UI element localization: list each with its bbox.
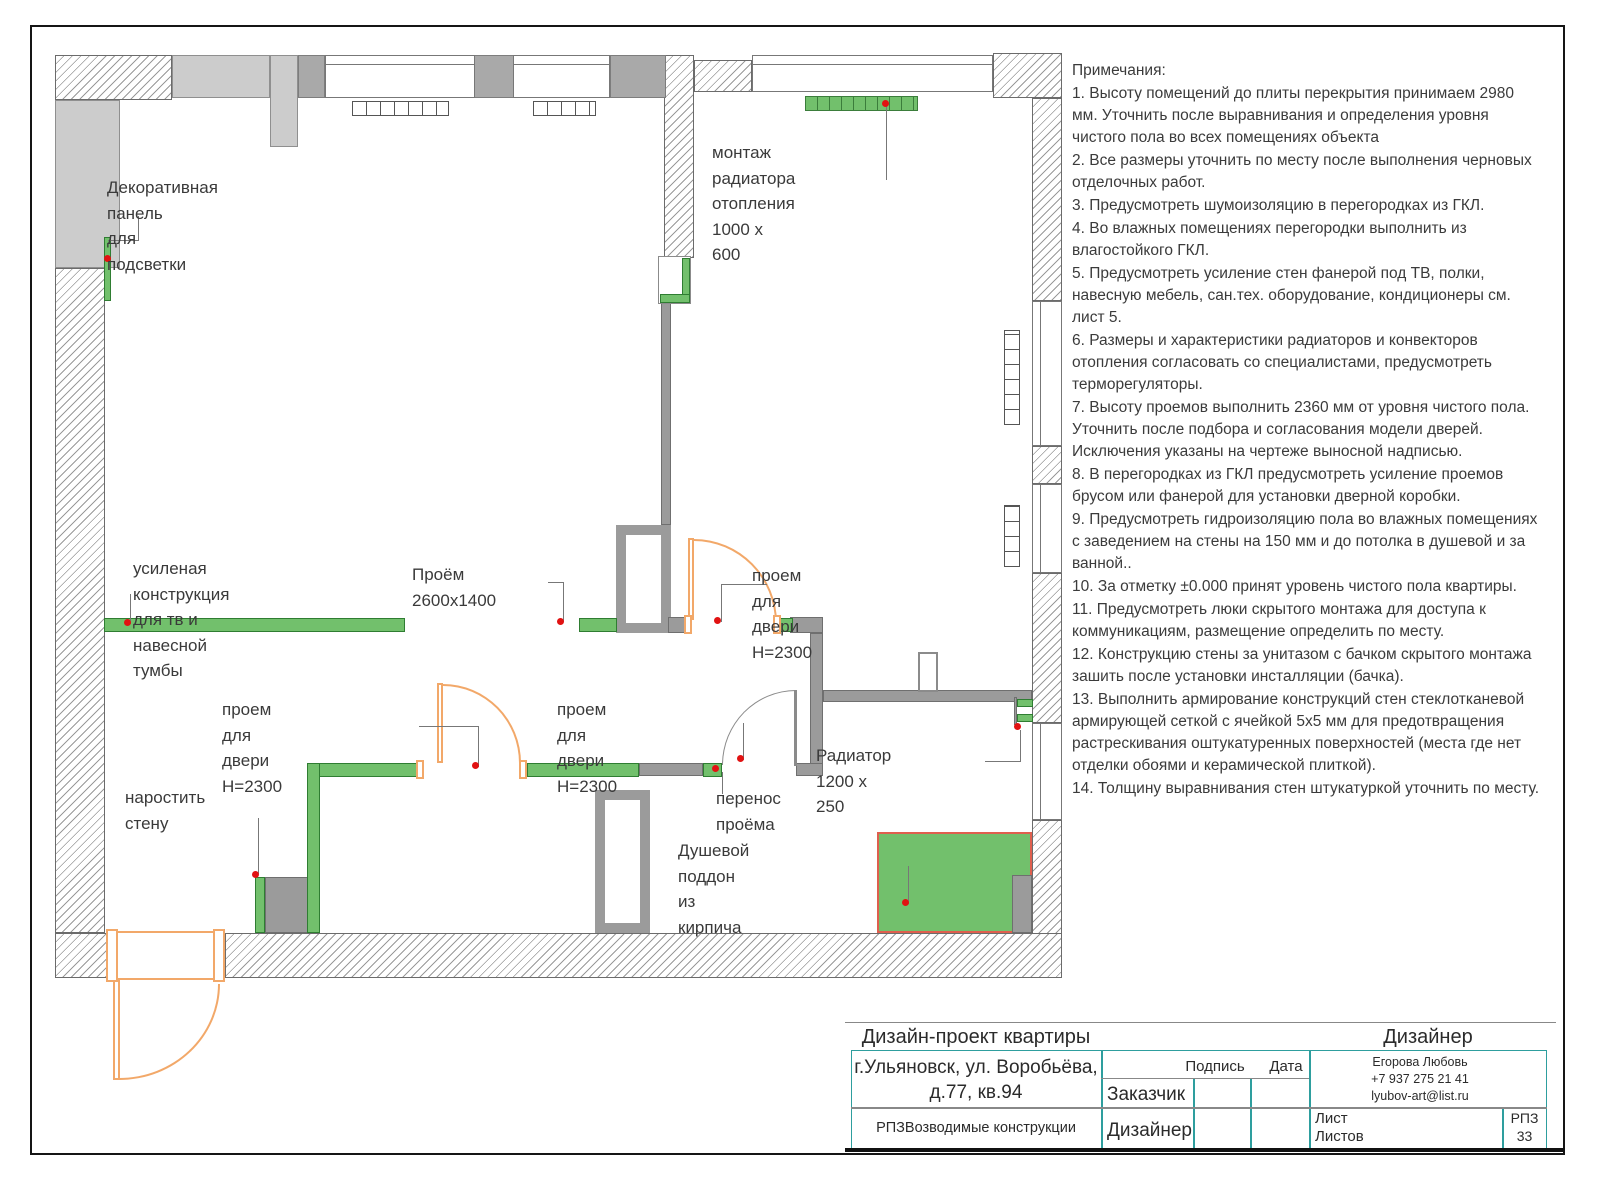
marker-door-top [714,617,721,624]
leader-grow-wall [258,818,259,874]
title-block-col-signature: Подпись [1165,1058,1265,1075]
note-item: 12. Конструкцию стены за унитазом с бачк… [1072,644,1542,688]
window-6 [1032,723,1062,820]
radiator-small-bar-1 [1017,699,1033,707]
leader-door-left-v [478,726,479,767]
leader-radiator-small-v [1020,730,1021,762]
marker-radiator-mount [882,100,889,107]
pilaster-top [172,55,270,98]
radiator-existing-4 [1004,505,1020,567]
note-item: 4. Во влажных помещениях перегородки вып… [1072,218,1542,262]
note-item: 1. Высоту помещений до плиты перекрытия … [1072,83,1542,149]
note-item: 8. В перегородках из ГКЛ предусмотреть у… [1072,464,1542,508]
title-block-divider-1 [1101,1050,1103,1149]
notes-panel: Примечания: 1. Высоту помещений до плиты… [1072,60,1542,801]
leader-door-right [743,723,744,760]
leader-opening-v [563,582,564,622]
title-block-col-date: Дата [1256,1058,1316,1075]
leader-door-left-h [419,726,479,727]
title-block-project: Дизайн-проект квартиры [851,1026,1101,1049]
title-block-mid-line [851,1107,1547,1109]
window-2 [513,55,610,98]
entry-door-opening [108,931,225,980]
title-block-sheet-number: 33 [1502,1128,1547,1144]
wall-right-2 [1032,573,1062,723]
duct-shaft-1 [616,525,671,633]
label-radiator-small: Радиатор 1200 x 250 [816,743,891,820]
label-tv-wall: усиленая конструкция для тв и навесной т… [133,556,229,684]
leader-shower [908,866,909,904]
wall-top-left-corner [55,55,172,100]
title-block-contact-phone: +7 937 275 21 41 [1320,1072,1520,1086]
label-grow-wall: наростить стену [125,785,205,836]
title-block-contact-email: lyubov-art@list.ru [1320,1089,1520,1103]
marker-door-right [737,755,744,762]
pier-1 [298,55,325,98]
leader-radiator-small-h [985,761,1021,762]
title-block-doc-title: РПЗВозводимые конструкции [851,1120,1101,1136]
title-block-designer-header: Дизайнер [1309,1026,1547,1049]
title-block-sheets-label: Листов [1315,1128,1364,1145]
niche-green-bottom [660,294,690,303]
window-3 [752,55,993,92]
marker-transfer [712,765,719,772]
wall-rowB-gray [639,763,703,776]
marker-radiator-small [1014,723,1021,730]
note-item: 14. Толщину выравнивания стен штукатурко… [1072,778,1542,800]
label-decor-panel: Декоративная панель для подсветки [107,175,218,277]
title-block-sign-underline [1101,1078,1309,1079]
radiator-existing-2 [533,101,596,116]
marker-shower [902,899,909,906]
wall-stub [918,652,938,692]
wall-bottom-left [55,933,108,978]
radiator-existing-3 [1004,330,1020,425]
title-block-address-2: д.77, кв.94 [851,1082,1101,1104]
entry-door-jamb-left [106,929,118,982]
marker-tv-wall [124,619,131,626]
note-item: 2. Все размеры уточнить по месту после в… [1072,150,1542,194]
window-5 [1032,484,1062,573]
marker-door-left [472,762,479,769]
grow-wall-core [265,877,310,933]
title-block-row-client: Заказчик [1107,1084,1185,1106]
label-opening: Проём 2600x1400 [412,562,496,613]
note-item: 13. Выполнить армирование конструкций ст… [1072,689,1542,777]
marker-grow-wall [252,871,259,878]
radiator-small-bar-2 [1017,714,1033,722]
label-transfer: перенос проёма [716,786,781,837]
entry-door-jamb-right [213,929,225,982]
title-block-address-1: г.Ульяновск, ул. Воробьёва, [851,1057,1101,1079]
label-door-right: проем для двери Н=2300 [557,697,617,799]
wall-top-right-corner [993,53,1062,98]
note-item: 11. Предусмотреть люки скрытого монтажа … [1072,599,1542,643]
title-block-row-designer: Дизайнер [1107,1120,1192,1142]
label-door-left: проем для двери Н=2300 [222,697,282,799]
leader-opening-h [548,582,564,583]
wall-left [55,268,105,933]
note-item: 3. Предусмотреть шумоизоляцию в перегоро… [1072,195,1542,217]
note-item: 7. Высоту проемов выполнить 2360 мм от у… [1072,397,1542,463]
rowA-green-1 [579,618,617,632]
door-left-jamb-right [519,760,527,779]
label-radiator-mount: монтаж радиатора отопления 1000 x 600 [712,140,795,268]
wall-middle-top [664,55,694,258]
door-bath-leaf [794,690,797,766]
wall-right-3 [1032,820,1062,935]
column-top [270,55,298,147]
note-item: 5. Предусмотреть усиление стен фанерой п… [1072,263,1542,329]
note-item: 9. Предусмотреть гидроизоляцию пола во в… [1072,509,1542,575]
wall-right-pier [1032,446,1062,484]
duct-shaft-2 [595,790,650,933]
title-block-divider-3 [1250,1078,1252,1149]
window-4 [1032,301,1062,446]
radiator-new-top [805,96,918,111]
door-left-jamb-left [416,760,424,779]
door-top-jamb-left [684,615,692,634]
title-block-divider-2 [1193,1078,1195,1149]
leader-door-top-v [721,584,722,622]
label-door-top: проем для двери Н=2300 [752,563,812,665]
shower-tray [877,832,1032,933]
pier-3 [610,55,666,98]
grow-wall-green [255,877,265,933]
wall-top-right-room [694,60,752,92]
note-item: 6. Размеры и характеристики радиаторов и… [1072,330,1542,396]
title-block-contact-name: Егорова Любовь [1320,1055,1520,1069]
shower-notch [1012,875,1032,933]
partition-green-vertical [307,763,320,933]
title-block-bottom-line [845,1148,1565,1152]
note-item: 10. За отметку ±0.000 принят уровень чис… [1072,576,1542,598]
label-shower: Душевой поддон из кирпича [678,838,749,940]
leader-radiator-mount [886,106,887,180]
title-block-top-line [845,1022,1556,1023]
wall-right-1 [1032,98,1062,301]
radiator-existing-1 [352,101,449,116]
pier-2 [474,55,514,98]
notes-title: Примечания: [1072,60,1542,82]
title-block-doc-code: РПЗ [1502,1110,1547,1126]
marker-opening [557,618,564,625]
window-1 [325,55,475,98]
wall-bottom [225,933,1062,978]
rowB-green-1 [307,763,418,777]
title-block-sheet-label: Лист [1315,1110,1348,1127]
partition-middle [661,302,671,525]
